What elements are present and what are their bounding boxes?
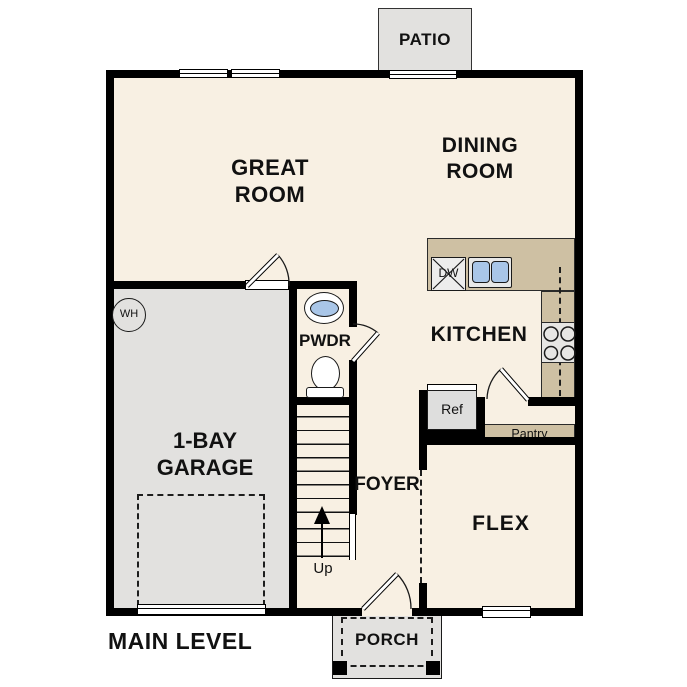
patio-label: PATIO — [399, 30, 451, 51]
powder-sink-basin — [310, 300, 339, 317]
stairs-up-label: Up — [305, 560, 341, 577]
toilet-bowl — [311, 356, 340, 391]
kitchen-label: KITCHEN — [423, 322, 535, 348]
wall-left — [106, 70, 114, 616]
kitchen-sink-basin-right — [491, 261, 509, 283]
powder-room-label: PWDR — [296, 331, 354, 352]
front-door-opening — [362, 608, 412, 616]
window-great-room-2 — [231, 69, 280, 78]
flex-label: FLEX — [465, 511, 537, 537]
patio-sliding-door — [389, 70, 457, 79]
window-flex — [482, 606, 531, 618]
wall-flex-top — [419, 437, 583, 445]
water-heater: WH — [112, 298, 146, 332]
garage-label: 1-BAY GARAGE — [147, 428, 263, 482]
window-great-room-1 — [179, 69, 228, 78]
foyer-label: FOYER — [351, 473, 423, 496]
porch-post-left — [333, 661, 347, 675]
wall-right — [575, 70, 583, 616]
dining-room-label: DINING ROOM — [420, 133, 540, 184]
patio-area: PATIO — [378, 8, 472, 72]
stairs-up-arrow-head — [314, 506, 330, 524]
kitchen-sink-basin-left — [472, 261, 490, 283]
garage-door-track — [137, 494, 265, 606]
porch-post-right — [426, 661, 440, 675]
garage-overhead-door — [137, 604, 266, 615]
stove — [541, 322, 575, 363]
stairs-upper-treads — [297, 404, 349, 516]
great-room-label: GREAT ROOM — [205, 155, 335, 209]
wall-powder-top — [289, 281, 357, 289]
stairs-railing — [349, 514, 356, 560]
wall-ref-pantry-divider — [477, 397, 485, 437]
dishwasher-label: DW — [438, 266, 460, 280]
stairs-up-arrow-shaft — [321, 522, 323, 558]
wall-top — [106, 70, 583, 78]
toilet-tank — [306, 387, 344, 398]
wall-garage-top — [106, 281, 247, 289]
floor-plan: PATIO PORCH Pantry DW — [0, 0, 687, 687]
wall-foyer-flex-stub-top — [419, 445, 427, 470]
wall-foyer-flex-stub-bottom — [419, 583, 427, 616]
garage-entry-threshold — [245, 280, 289, 290]
wall-powder-right-upper — [349, 281, 357, 327]
refrigerator-label: Ref — [441, 401, 463, 417]
main-level-label: MAIN LEVEL — [108, 627, 328, 655]
pantry-shelf: Pantry — [484, 424, 575, 438]
wall-pantry-top — [528, 397, 583, 406]
porch-label: PORCH — [344, 630, 430, 651]
refrigerator: Ref — [427, 390, 477, 430]
water-heater-label: WH — [120, 308, 138, 320]
dishwasher: DW — [431, 257, 466, 291]
